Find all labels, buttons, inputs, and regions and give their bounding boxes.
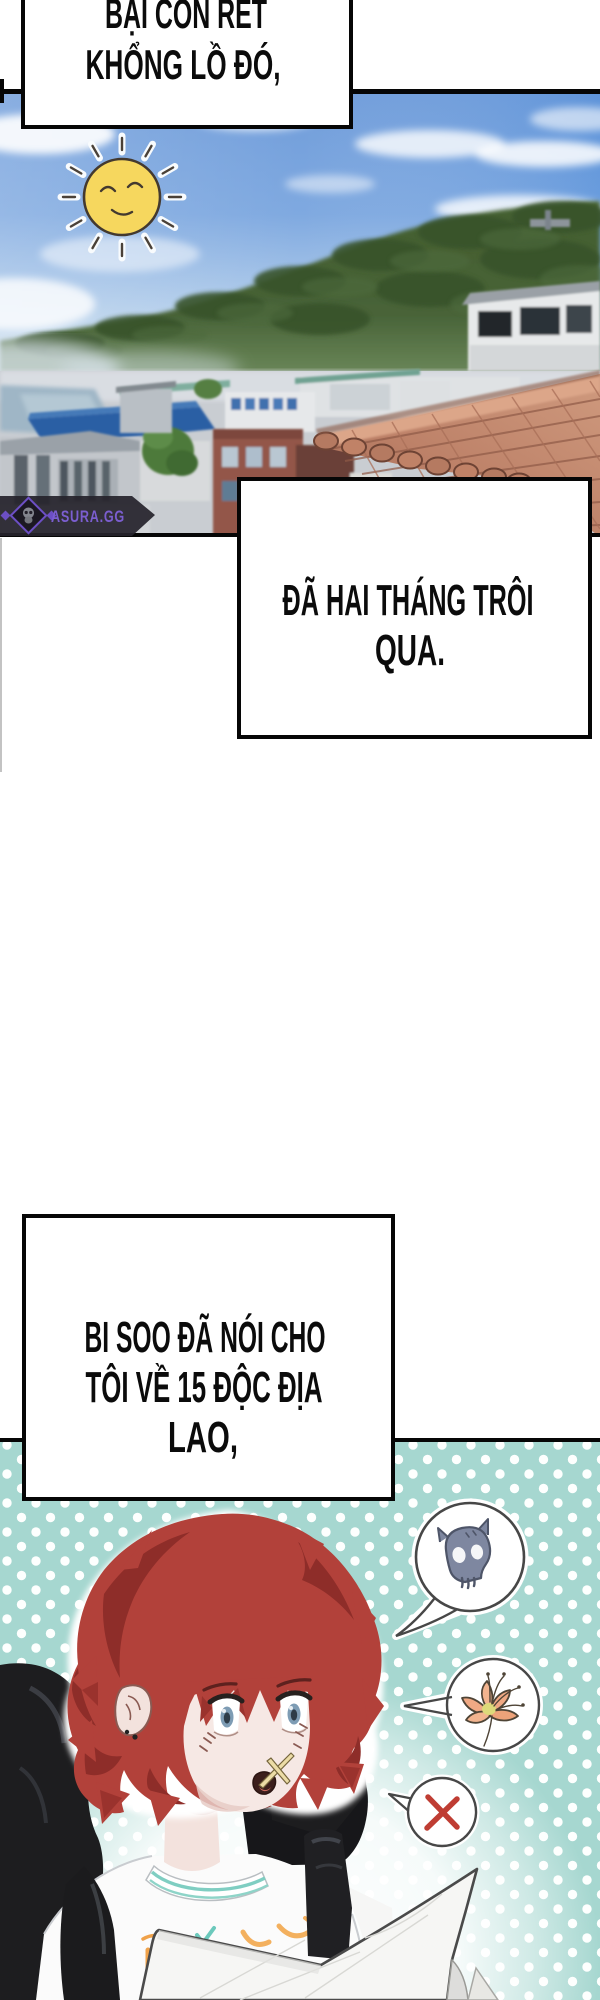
svg-text:ĐÃ HAI THÁNG TRÔI: ĐÃ HAI THÁNG TRÔI [283, 574, 534, 625]
svg-text:QUA.: QUA. [375, 627, 445, 675]
svg-text:TÔI VỀ 15 ĐỘC ĐỊA: TÔI VỀ 15 ĐỘC ĐỊA [86, 1361, 323, 1412]
svg-text:LAO,: LAO, [168, 1414, 238, 1462]
svg-text:BẠI CON RẾT: BẠI CON RẾT [105, 0, 267, 37]
svg-text:BI SOO ĐÃ NÓI CHO: BI SOO ĐÃ NÓI CHO [85, 1312, 326, 1362]
svg-text:KHỔNG LỒ ĐÓ,: KHỔNG LỒ ĐÓ, [86, 41, 281, 88]
